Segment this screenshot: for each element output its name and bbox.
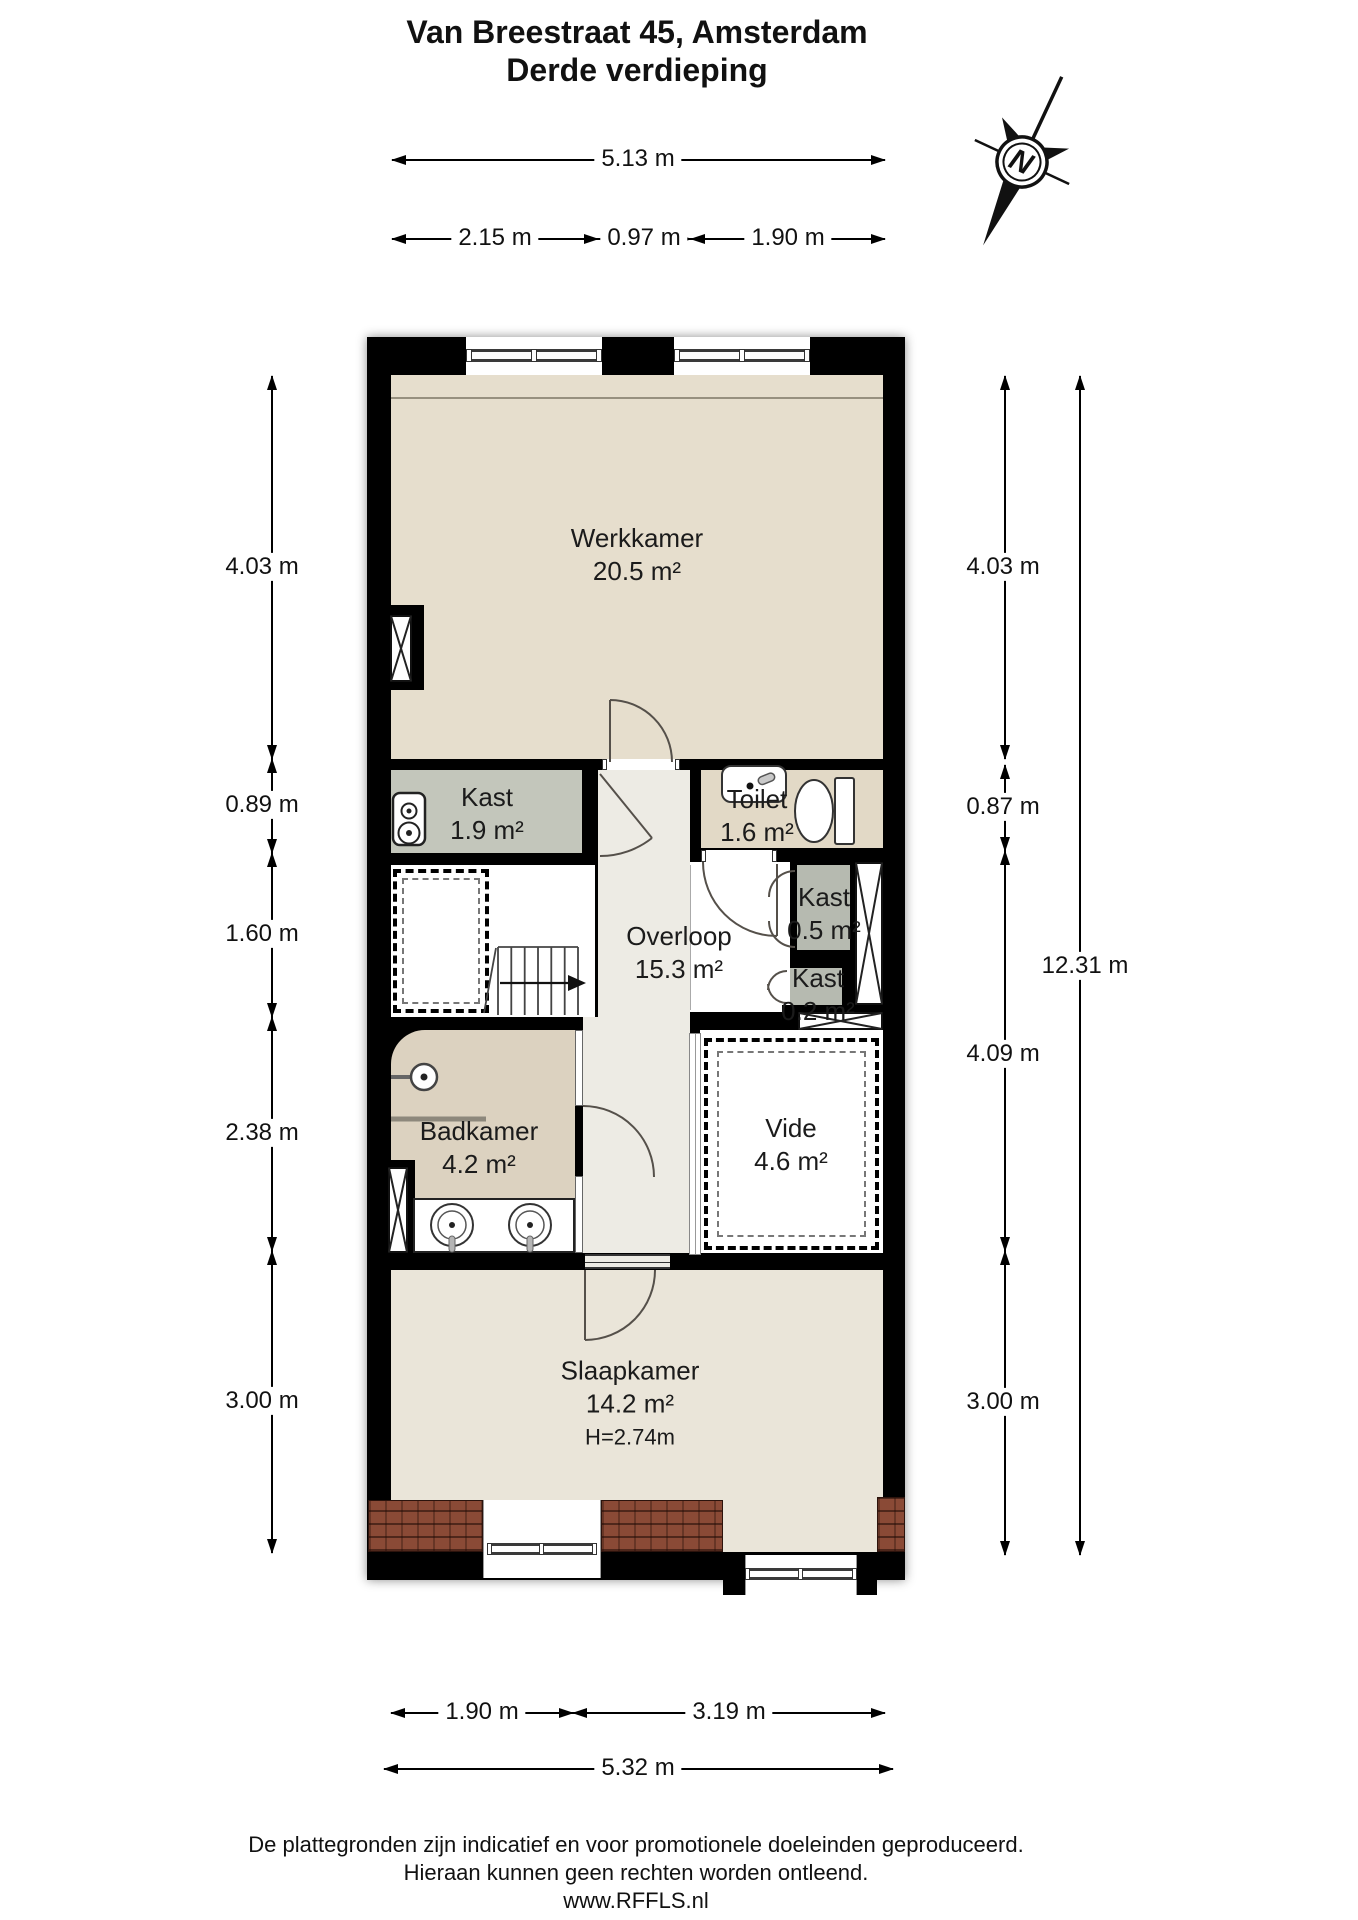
overloop-floor-low [583, 1017, 690, 1258]
door-post [772, 850, 777, 862]
werkkamer-kneewall-line [391, 397, 883, 399]
landing-floor [598, 770, 690, 865]
label-kast-groot: Kast1.9 m² [450, 781, 524, 847]
window-mullion [466, 349, 472, 362]
footer-disclaimer-line1: De plattegronden zijn indicatief en voor… [248, 1832, 1023, 1858]
slaapkamer-floor-lower-right [723, 1500, 877, 1552]
dim-left-seg1: 4.03 m [218, 553, 305, 581]
badkamer-chimney-shaft-icon [388, 1167, 408, 1253]
roof-tiles-right [877, 1497, 905, 1552]
compass-north-icon: N [945, 60, 1100, 265]
label-werkkamer: Werkkamer20.5 m² [571, 522, 703, 588]
werkkamer-chimney-shaft-icon [390, 615, 412, 682]
stairwell-dashed-inner [402, 878, 480, 1004]
window-mullion [674, 349, 680, 362]
dim-right-seg4: 3.00 m [959, 1388, 1046, 1416]
page-title-floor: Derde verdieping [506, 52, 767, 89]
door-post [675, 759, 680, 770]
roof-tiles-center [601, 1500, 723, 1552]
dim-left-seg3: 1.60 m [218, 920, 305, 948]
toilet-door-opening [701, 850, 777, 862]
badkamer-vanity [413, 1198, 575, 1253]
wall-kast-groot-east [582, 759, 598, 865]
wall-toilet-west [690, 759, 701, 850]
dim-top-total: 5.13 m [594, 145, 681, 173]
label-overloop: Overloop15.3 m² [626, 920, 732, 986]
window-mullion [852, 1568, 857, 1580]
window-mullion [539, 1543, 544, 1555]
slaapkamer-dormer-window-left [483, 1500, 601, 1578]
badkamer-partition-north [575, 1030, 583, 1106]
werkkamer-door-opening [602, 759, 680, 770]
window-mullion [798, 1568, 803, 1580]
footer-disclaimer-line2: Hieraan kunnen geen rechten worden ontle… [404, 1860, 869, 1886]
label-vide: Vide4.6 m² [754, 1112, 828, 1178]
dim-left-seg2: 0.89 m [218, 791, 305, 819]
door-post [602, 759, 607, 770]
window-mullion [487, 1543, 492, 1555]
dim-right-seg2: 0.87 m [959, 793, 1046, 821]
footer-website: www.RFFLS.nl [563, 1888, 708, 1914]
label-slaapkamer: Slaapkamer14.2 m² H=2.74m [561, 1355, 700, 1454]
vide-balustrade [689, 1033, 701, 1255]
page-title-address: Van Breestraat 45, Amsterdam [406, 14, 867, 51]
window-mullion [592, 1543, 597, 1555]
dim-top-seg1: 2.15 m [451, 224, 538, 252]
dim-right-seg3: 4.09 m [959, 1040, 1046, 1068]
window-mullion [531, 349, 537, 362]
label-kast-05: Kast0.5 m² [787, 881, 861, 947]
dim-right-seg1: 4.03 m [959, 553, 1046, 581]
floorplan-page: Van Breestraat 45, Amsterdam Derde verdi… [0, 0, 1358, 1920]
dim-bottom-seg1: 1.90 m [438, 1698, 525, 1726]
dim-top-seg2: 0.97 m [600, 224, 687, 252]
dim-left-seg5: 3.00 m [218, 1387, 305, 1415]
label-kast-02: Kast0.2 m² [781, 962, 855, 1028]
label-badkamer: Badkamer4.2 m² [420, 1115, 539, 1181]
dim-right-total: 12.31 m [1035, 952, 1136, 980]
window-mullion [745, 1568, 750, 1580]
window-mullion [739, 349, 745, 362]
window-mullion [804, 349, 810, 362]
dim-bottom-total: 5.32 m [594, 1754, 681, 1782]
door-post [701, 850, 706, 862]
dim-top-seg3: 1.90 m [744, 224, 831, 252]
window-mullion [596, 349, 602, 362]
roof-tiles-left [368, 1500, 483, 1552]
wall-badkamer-north [367, 1017, 583, 1030]
dim-bottom-seg2: 3.19 m [685, 1698, 772, 1726]
wall-kast-groot-south [367, 853, 598, 865]
slaapkamer-door-threshold [585, 1254, 670, 1269]
dim-left-seg4: 2.38 m [218, 1119, 305, 1147]
badkamer-partition-south [575, 1176, 583, 1253]
label-toilet: Toilet1.6 m² [720, 783, 794, 849]
